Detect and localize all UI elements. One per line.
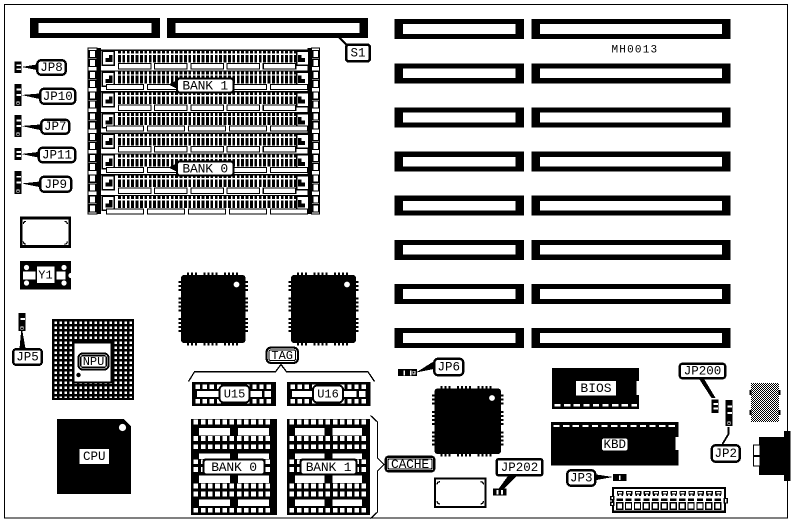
svg-text:TAG: TAG xyxy=(271,349,293,363)
svg-text:U16: U16 xyxy=(317,388,339,402)
svg-text:BANK 1: BANK 1 xyxy=(306,460,352,475)
svg-text:JP9: JP9 xyxy=(45,178,68,192)
svg-text:JP200: JP200 xyxy=(684,365,722,379)
svg-text:JP5: JP5 xyxy=(16,351,39,365)
svg-text:JP3: JP3 xyxy=(570,472,593,486)
svg-text:JP11: JP11 xyxy=(42,149,72,163)
svg-text:BANK 1: BANK 1 xyxy=(182,79,228,94)
svg-text:BANK 0: BANK 0 xyxy=(211,460,257,475)
svg-text:CACHE: CACHE xyxy=(391,457,429,472)
svg-text:MH0013: MH0013 xyxy=(612,44,659,56)
svg-text:KBD: KBD xyxy=(604,438,627,452)
svg-text:JP202: JP202 xyxy=(501,461,539,475)
svg-text:BANK 0: BANK 0 xyxy=(182,162,228,177)
svg-text:CPU: CPU xyxy=(83,450,106,464)
svg-text:U15: U15 xyxy=(224,388,246,402)
svg-text:JP6: JP6 xyxy=(438,361,461,375)
svg-text:JP10: JP10 xyxy=(43,90,73,104)
svg-text:JP2: JP2 xyxy=(715,447,738,461)
svg-text:JP7: JP7 xyxy=(44,120,67,134)
svg-text:BIOS: BIOS xyxy=(580,381,611,396)
svg-text:NPU: NPU xyxy=(83,355,105,369)
svg-text:JP8: JP8 xyxy=(40,61,63,75)
svg-text:Y1: Y1 xyxy=(38,269,52,283)
svg-text:S1: S1 xyxy=(350,47,365,61)
